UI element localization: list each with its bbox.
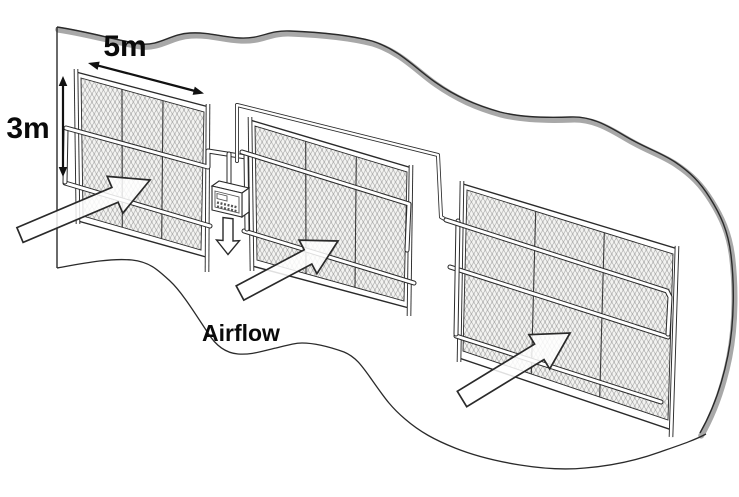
height-dimension-label: 3m [6,112,49,145]
diagram-canvas: 5m 3m Airflow [0,0,739,497]
width-dimension-label: 5m [103,30,146,63]
airflow-label: Airflow [202,320,280,346]
device-outflow-arrow [217,218,240,255]
mesh-panel-1 [76,69,209,272]
fog-collector-diagram: 5m 3m Airflow [0,0,739,497]
flow-device [212,181,249,217]
mesh-panel-2 [250,117,412,316]
